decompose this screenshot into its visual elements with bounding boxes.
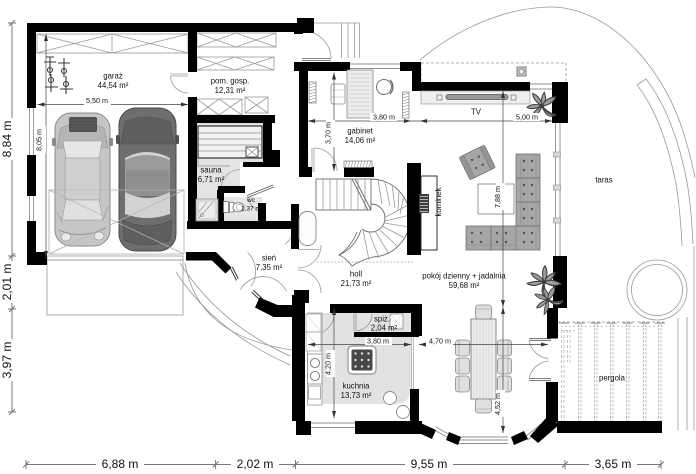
svg-text:garaż: garaż xyxy=(103,72,123,81)
svg-text:2,01 m: 2,01 m xyxy=(0,264,14,301)
svg-text:pom. gosp.: pom. gosp. xyxy=(211,77,250,86)
svg-text:12,31 m²: 12,31 m² xyxy=(215,86,246,95)
svg-text:sień: sień xyxy=(262,254,276,263)
svg-text:2,02 m: 2,02 m xyxy=(237,457,274,471)
svg-text:kuchnia: kuchnia xyxy=(343,382,371,391)
svg-text:3,65 m: 3,65 m xyxy=(595,457,632,471)
svg-text:3,70 m: 3,70 m xyxy=(324,122,333,144)
svg-text:3,97 m: 3,97 m xyxy=(0,342,14,379)
svg-text:sauna: sauna xyxy=(200,166,222,175)
svg-text:14,06 m²: 14,06 m² xyxy=(345,136,376,145)
svg-text:kominek: kominek xyxy=(434,187,443,216)
svg-text:44,54 m²: 44,54 m² xyxy=(98,81,129,90)
svg-text:6,88 m: 6,88 m xyxy=(102,457,139,471)
svg-text:5,50 m: 5,50 m xyxy=(86,96,108,105)
svg-text:4,20 m: 4,20 m xyxy=(324,353,333,375)
svg-text:7,88 m: 7,88 m xyxy=(493,186,502,208)
svg-text:TV: TV xyxy=(471,108,482,117)
svg-text:wc: wc xyxy=(246,197,256,204)
svg-text:9,55 m: 9,55 m xyxy=(411,457,448,471)
svg-text:8,05 m: 8,05 m xyxy=(35,129,44,151)
svg-text:13,73 m²: 13,73 m² xyxy=(341,391,372,400)
svg-text:5,00 m: 5,00 m xyxy=(516,113,538,122)
svg-text:59,68 m²: 59,68 m² xyxy=(449,281,480,290)
svg-text:2,04 m²: 2,04 m² xyxy=(371,324,398,333)
svg-text:taras: taras xyxy=(595,176,612,185)
svg-text:pokój dzienny + jadalnia: pokój dzienny + jadalnia xyxy=(422,272,506,281)
svg-text:pergola: pergola xyxy=(599,374,626,383)
svg-text:3,80 m: 3,80 m xyxy=(367,337,389,346)
svg-text:7,35 m²: 7,35 m² xyxy=(256,263,283,272)
svg-text:gabinet: gabinet xyxy=(347,127,373,136)
svg-text:holl: holl xyxy=(350,270,362,279)
svg-text:spiż.: spiż. xyxy=(374,315,390,324)
svg-text:4,52 m: 4,52 m xyxy=(493,393,502,415)
svg-text:21,73 m²: 21,73 m² xyxy=(341,279,372,288)
svg-text:4,70 m: 4,70 m xyxy=(429,337,451,346)
svg-text:8,84 m: 8,84 m xyxy=(0,121,14,158)
svg-text:1,37 m²: 1,37 m² xyxy=(241,206,264,213)
svg-text:6,71 m²: 6,71 m² xyxy=(198,175,225,184)
svg-text:3,80 m: 3,80 m xyxy=(373,113,395,122)
